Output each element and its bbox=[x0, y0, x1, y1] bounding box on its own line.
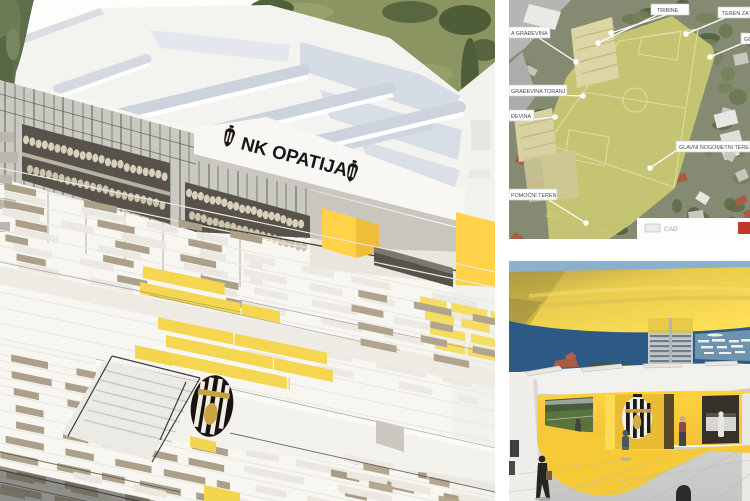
svg-text:TEREN ZA: TEREN ZA bbox=[722, 11, 749, 17]
svg-text:GRAĐEVINA TORANJ: GRAĐEVINA TORANJ bbox=[511, 89, 566, 95]
svg-text:A GRAĐEVINA: A GRAĐEVINA bbox=[511, 31, 548, 37]
svg-text:ĐEVINA: ĐEVINA bbox=[511, 114, 531, 120]
svg-text:CAD: CAD bbox=[664, 226, 678, 233]
svg-text:GO: GO bbox=[744, 37, 750, 43]
svg-text:TRIBINE: TRIBINE bbox=[657, 8, 679, 14]
svg-text:POMOĆNI TEREN: POMOĆNI TEREN bbox=[511, 192, 557, 199]
svg-text:GLAVNI NOGOMETNI TERE: GLAVNI NOGOMETNI TERE bbox=[679, 145, 749, 151]
